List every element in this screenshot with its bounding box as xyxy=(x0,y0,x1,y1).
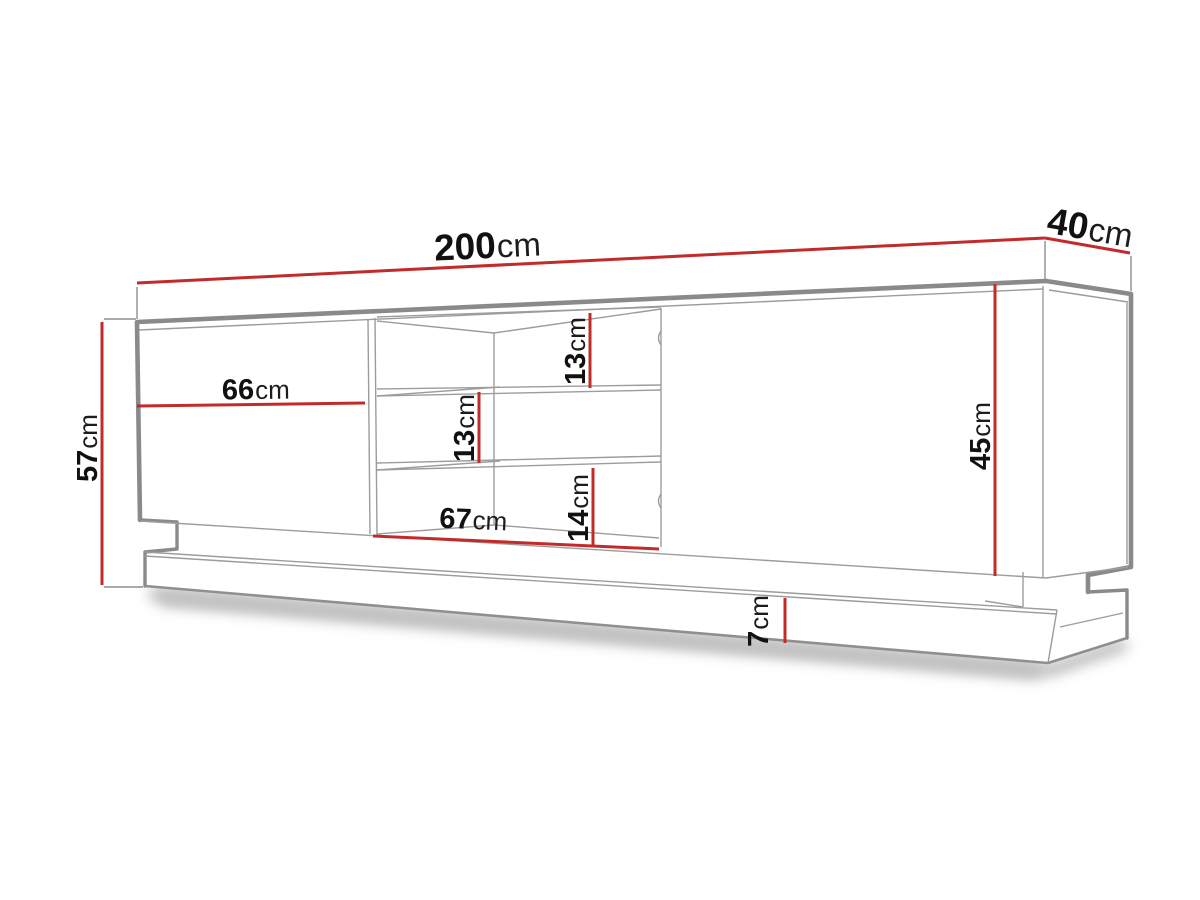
dim-front-height-label: 45cm xyxy=(965,402,997,470)
dim-shelf-bottom-label: 14cm xyxy=(563,474,595,542)
dim-left-door-label: 66cm xyxy=(222,374,290,407)
furniture-dimension-diagram: 200cm 40cm 57cm 66cm 45cm 13cm 13cm 14cm… xyxy=(0,0,1200,900)
dim-plinth-label: 7cm xyxy=(743,595,775,647)
dim-depth-label: 40cm xyxy=(1044,200,1136,255)
dim-shelf-middle-label: 13cm xyxy=(449,394,481,462)
diagram-canvas: 200cm 40cm 57cm 66cm 45cm 13cm 13cm 14cm… xyxy=(0,0,1200,900)
dim-width-label: 200cm xyxy=(433,222,542,268)
dim-total-height-label: 57cm xyxy=(72,414,104,482)
dim-middle-width-label: 67cm xyxy=(439,503,508,538)
dim-line-width xyxy=(137,238,1045,283)
dim-shelf-top-label: 13cm xyxy=(560,317,592,385)
